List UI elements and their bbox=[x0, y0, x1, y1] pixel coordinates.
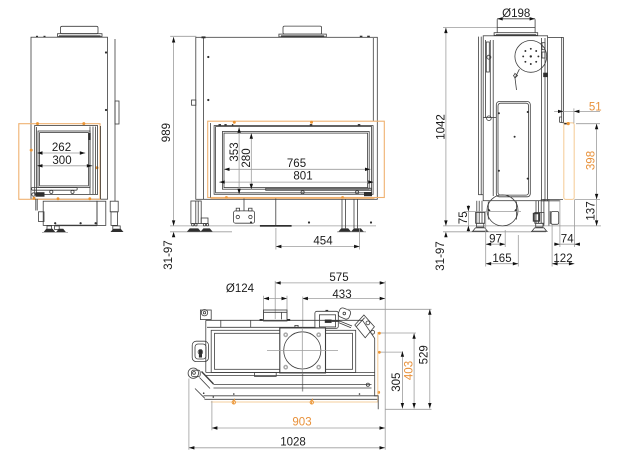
svg-text:75: 75 bbox=[458, 211, 470, 224]
svg-text:305: 305 bbox=[391, 373, 403, 392]
svg-text:137: 137 bbox=[585, 201, 597, 220]
svg-text:1028: 1028 bbox=[280, 437, 306, 449]
svg-text:403: 403 bbox=[403, 361, 415, 380]
svg-text:262: 262 bbox=[52, 142, 71, 154]
svg-text:31-97: 31-97 bbox=[435, 241, 447, 270]
svg-text:74: 74 bbox=[561, 233, 574, 245]
svg-text:801: 801 bbox=[293, 171, 312, 183]
svg-text:398: 398 bbox=[586, 151, 598, 170]
svg-text:Ø124: Ø124 bbox=[226, 283, 255, 295]
svg-text:300: 300 bbox=[52, 155, 71, 167]
svg-text:454: 454 bbox=[313, 235, 333, 247]
svg-text:903: 903 bbox=[292, 417, 311, 429]
svg-text:1042: 1042 bbox=[436, 114, 448, 140]
svg-text:575: 575 bbox=[329, 272, 348, 284]
svg-text:529: 529 bbox=[419, 345, 431, 364]
svg-text:433: 433 bbox=[332, 289, 351, 301]
svg-text:Ø198: Ø198 bbox=[502, 8, 530, 20]
svg-text:31-97: 31-97 bbox=[163, 240, 175, 269]
svg-text:165: 165 bbox=[492, 253, 511, 265]
svg-text:989: 989 bbox=[161, 123, 173, 142]
svg-text:353: 353 bbox=[229, 142, 241, 161]
svg-text:765: 765 bbox=[287, 158, 306, 170]
svg-text:280: 280 bbox=[241, 148, 253, 167]
